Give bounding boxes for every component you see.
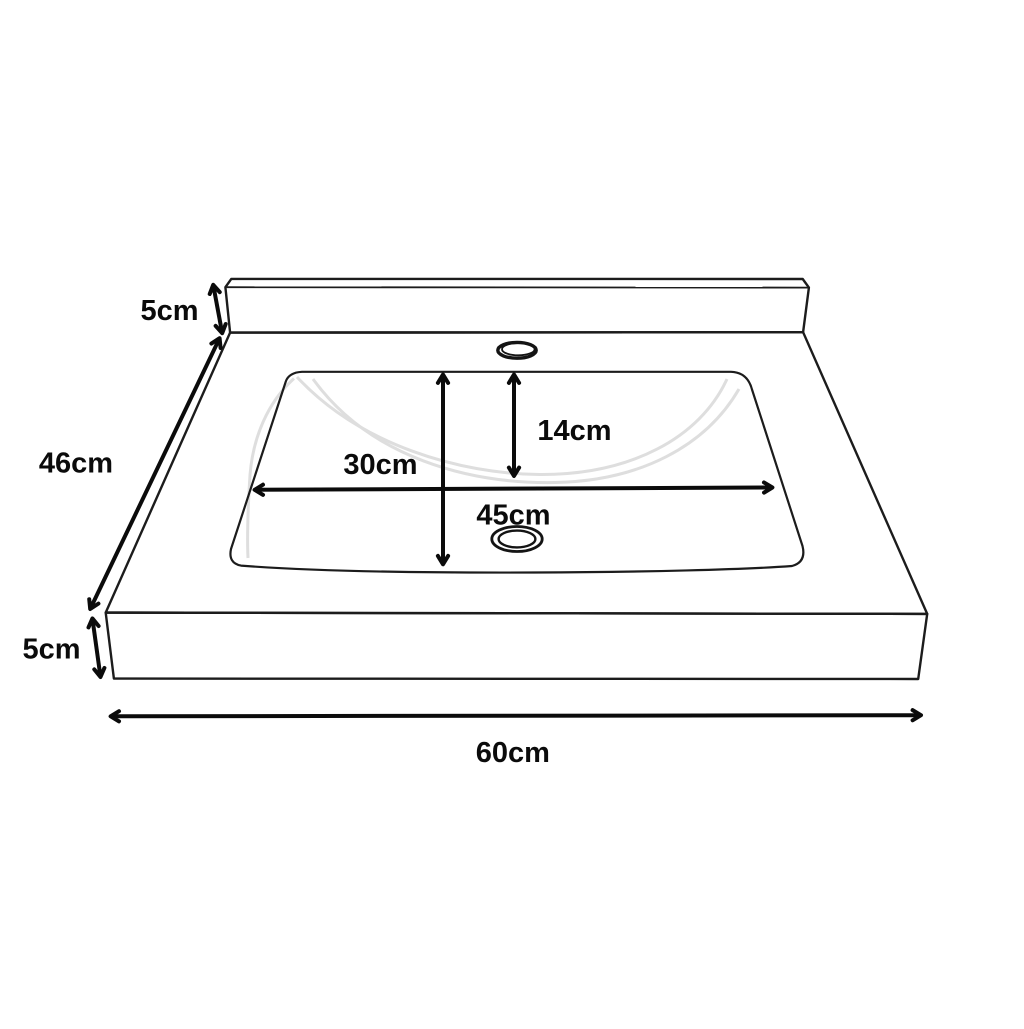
- svg-text:45cm: 45cm: [476, 500, 550, 532]
- svg-text:5cm: 5cm: [140, 295, 198, 327]
- svg-text:46cm: 46cm: [39, 447, 113, 479]
- svg-text:30cm: 30cm: [343, 449, 417, 481]
- svg-text:5cm: 5cm: [22, 633, 80, 665]
- svg-text:14cm: 14cm: [537, 415, 611, 447]
- svg-text:60cm: 60cm: [476, 737, 550, 769]
